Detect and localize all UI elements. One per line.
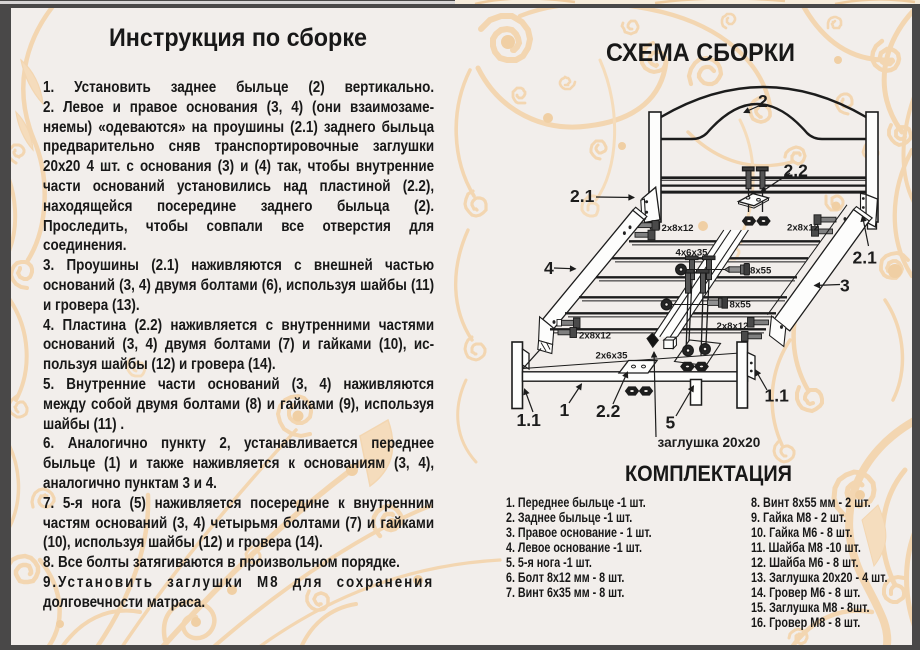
svg-text:2.2: 2.2: [784, 161, 809, 181]
svg-text:3: 3: [840, 276, 850, 296]
svg-text:заглушка 20х20: заглушка 20х20: [658, 435, 761, 450]
svg-text:1.1: 1.1: [517, 410, 542, 430]
svg-text:2х8х12: 2х8х12: [579, 331, 611, 342]
svg-text:5: 5: [666, 413, 676, 433]
svg-text:8х55: 8х55: [750, 265, 772, 276]
svg-text:2.1: 2.1: [570, 186, 595, 206]
svg-text:1.1: 1.1: [765, 386, 790, 406]
svg-text:2.2: 2.2: [596, 401, 621, 421]
svg-text:4: 4: [544, 258, 554, 278]
svg-text:2.1: 2.1: [853, 248, 878, 268]
svg-text:1: 1: [560, 400, 570, 420]
svg-text:2х8х12: 2х8х12: [787, 223, 819, 234]
svg-text:4х6х35: 4х6х35: [676, 248, 709, 259]
svg-text:2х6х35: 2х6х35: [596, 351, 629, 362]
svg-text:2х8х12: 2х8х12: [717, 321, 749, 332]
svg-text:2х8х12: 2х8х12: [662, 223, 694, 234]
svg-text:2: 2: [758, 91, 768, 111]
svg-text:8х55: 8х55: [730, 299, 752, 310]
